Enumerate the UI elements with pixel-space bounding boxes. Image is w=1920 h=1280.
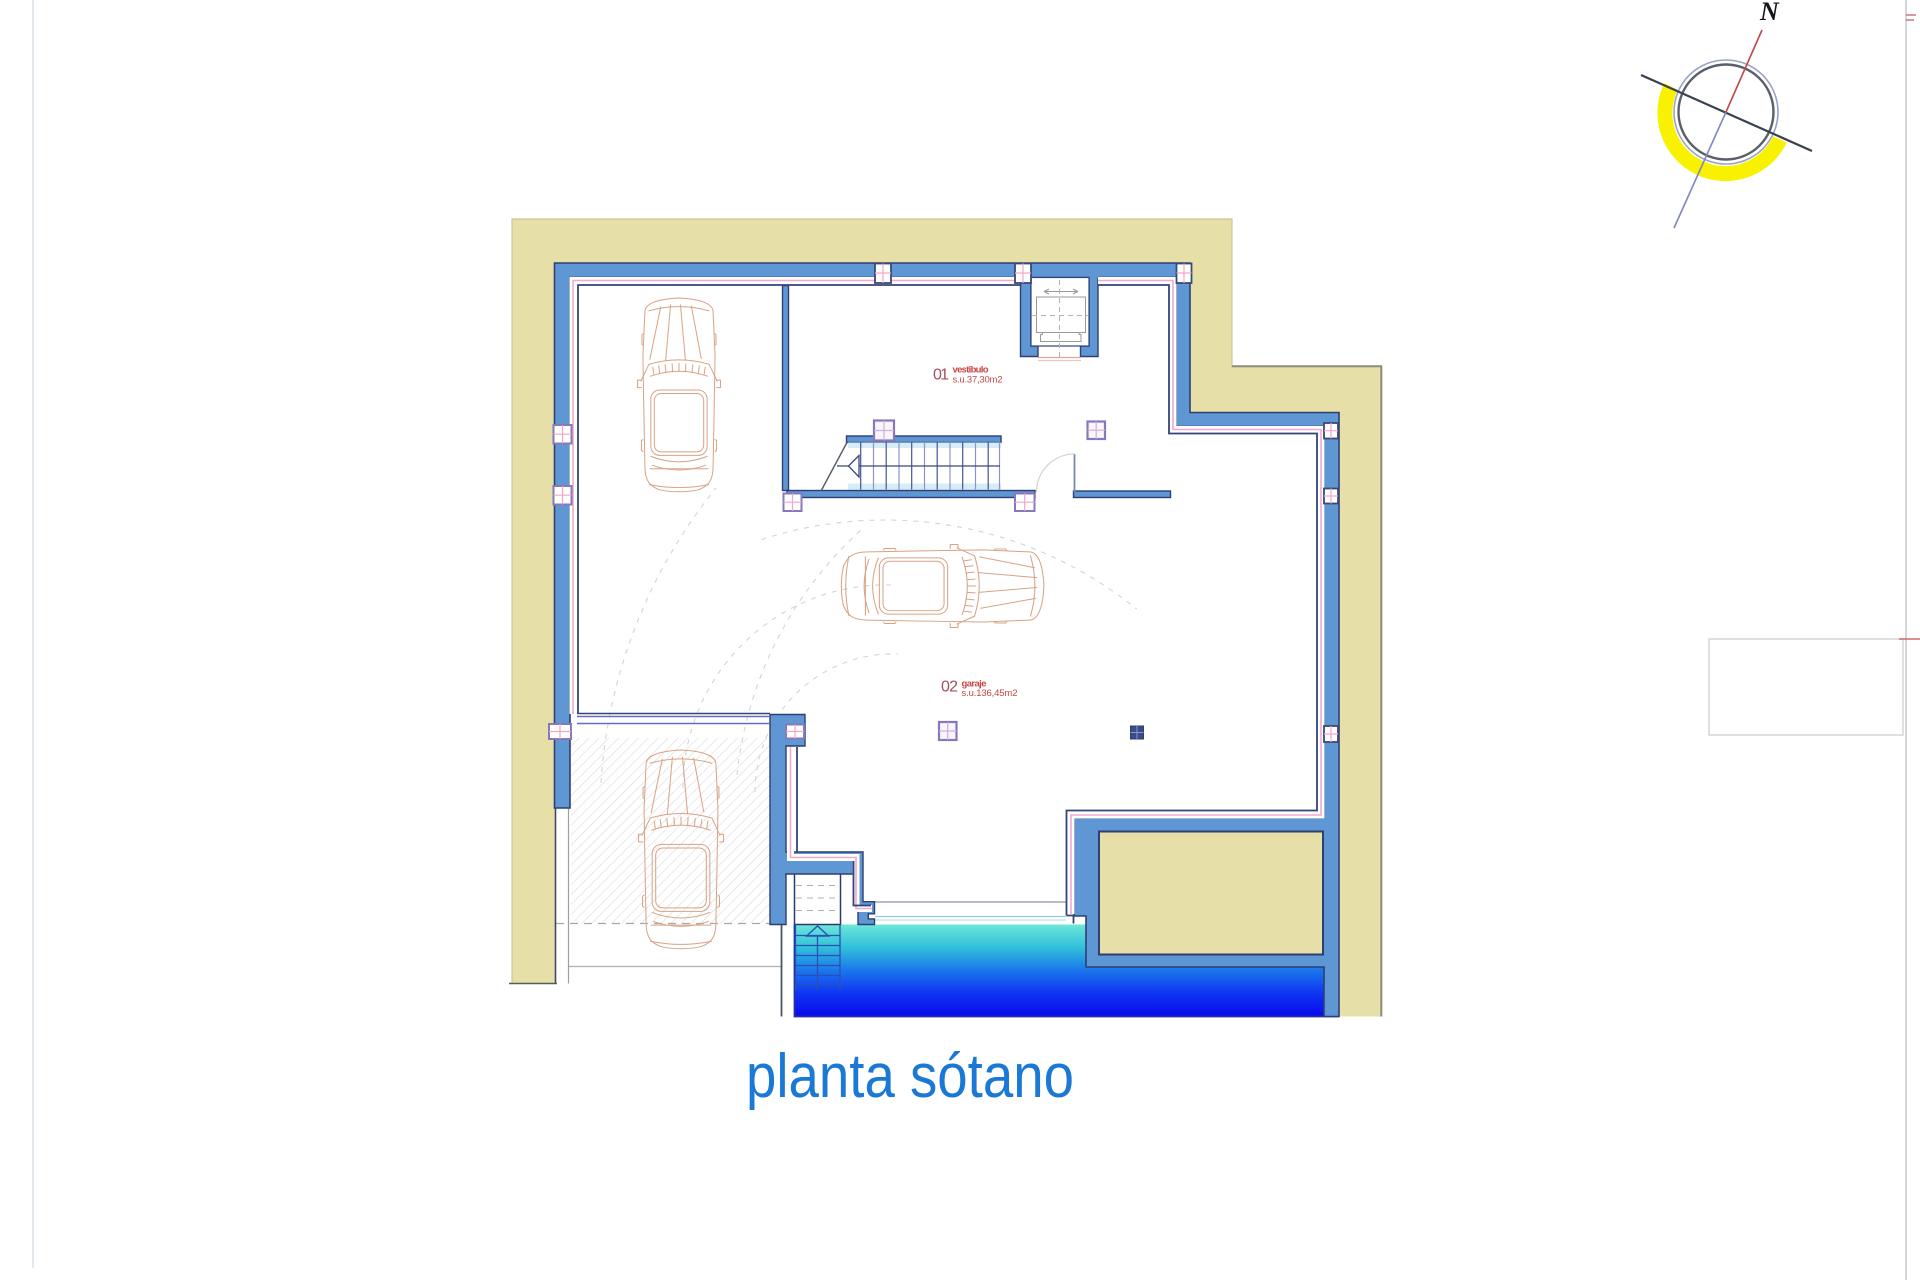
svg-text:02: 02 [941,679,958,696]
svg-text:s.u.136,45m2: s.u.136,45m2 [962,688,1018,699]
svg-text:01: 01 [933,367,949,384]
svg-text:s.u.37,30m2: s.u.37,30m2 [953,375,1003,386]
svg-text:N: N [1759,0,1780,26]
svg-text:planta sótano: planta sótano [746,1042,1074,1111]
